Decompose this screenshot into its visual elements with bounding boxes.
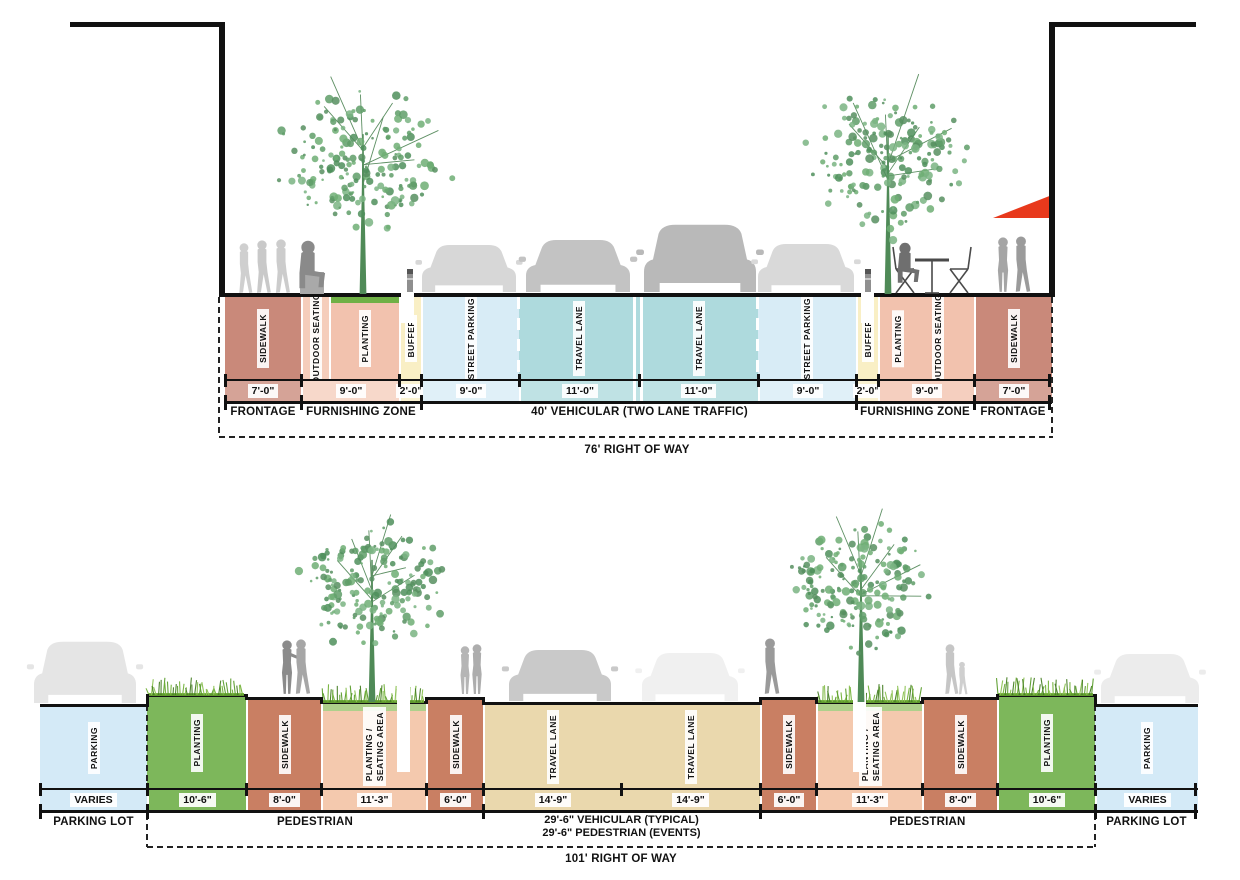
dimension-cell: 14'-9" [621, 789, 760, 811]
group-label-line2: 29'-6" PEDESTRIAN (EVENTS) [483, 827, 760, 839]
zone-buffer: BUFFER [856, 297, 878, 380]
group-tick [1194, 804, 1197, 819]
zone-label: OUTDOOR SEATING [933, 293, 943, 383]
group-label-line1: 29'-6" VEHICULAR (TYPICAL) [483, 814, 760, 826]
dimension-cell: 6'-0" [426, 789, 483, 811]
dimension-tick [757, 374, 760, 387]
ground-step [815, 697, 818, 704]
awning [993, 195, 1052, 218]
dimension-tick [1194, 783, 1197, 796]
parking-boundary-dash [1094, 695, 1096, 789]
group-label: PEDESTRIAN [760, 816, 1095, 828]
dimension-tick [638, 374, 641, 387]
dimension-tick [1094, 783, 1097, 796]
dimension-tick [620, 783, 623, 796]
dimension-tick [759, 783, 762, 796]
dimension-cell: VARIES [1095, 789, 1198, 811]
dimension-value: 9'-0" [793, 384, 824, 398]
dimension-cell: 2'-0" [399, 380, 421, 402]
dimension-cell: 6'-0" [760, 789, 816, 811]
zone-parking: PARKING [40, 704, 147, 789]
row-bracket-left [218, 297, 220, 436]
zone-planting-seating: PLANTING /SEATING AREA [321, 701, 426, 789]
group-label: PEDESTRIAN [147, 816, 483, 828]
group-tick [1048, 395, 1051, 410]
dimension-cell: 7'-0" [225, 380, 301, 402]
group-label: FURNISHING ZONE [295, 406, 427, 418]
building-wall-right [1049, 22, 1055, 297]
zone-furnishing-right: PLANTING OUTDOOR SEATING [878, 297, 974, 380]
zone-sidewalk: SIDEWALK [974, 297, 1052, 380]
zone-label: BUFFER [406, 320, 416, 357]
dimension-cell: 9'-0" [878, 380, 974, 402]
building-wall-left [219, 22, 225, 297]
car-icon [519, 240, 638, 292]
dimension-cell: 11'-0" [639, 380, 758, 402]
person-silhouette [765, 638, 780, 693]
dimension-cell: 11'-0" [519, 380, 639, 402]
dimension-line [40, 788, 1198, 790]
zone-label: TRAVEL LANE [686, 715, 696, 779]
car-icon [502, 650, 618, 701]
ground-step [996, 694, 999, 700]
zone-planting-seating: PLANTING /SEATING AREA [816, 701, 922, 789]
group-line [40, 810, 1198, 813]
group-label: PARKING LOT [1095, 816, 1198, 828]
group-label: 40' VEHICULAR (TWO LANE TRAFFIC) [421, 406, 858, 418]
dimension-tick [224, 374, 227, 387]
zone-label: STREET PARKING [802, 298, 812, 379]
ground-line-top [219, 293, 1055, 297]
zone-travel-lane: TRAVEL LANE [639, 297, 758, 380]
zone-label: SIDEWALK [956, 720, 966, 769]
dimension-cell: 2'-0" [856, 380, 878, 402]
zone-label: SIDEWALK [1009, 314, 1019, 363]
dimension-tick [245, 783, 248, 796]
zone-label: SIDEWALK [258, 314, 268, 363]
street-section-diagrams: SIDEWALK OUTDOOR SEATING PLANTING BUFFER… [0, 0, 1240, 880]
dimension-cell: 7'-0" [974, 380, 1052, 402]
zone-label: TRAVEL LANE [694, 306, 704, 370]
person-silhouette [461, 646, 470, 694]
group-tick [39, 804, 42, 819]
dimension-value: 9'-0" [456, 384, 487, 398]
zone-label: PLANTING [192, 719, 202, 766]
zone-travel-lane: TRAVEL LANE [483, 702, 621, 789]
zone-label: SIDEWALK [451, 720, 461, 769]
dimension-cell: 14'-9" [483, 789, 621, 811]
dimension-value: 11'-3" [357, 793, 393, 807]
zone-label: PLANTING [893, 315, 903, 362]
dimension-cell: 11'-3" [321, 789, 426, 811]
dimension-value: 6'-0" [774, 793, 805, 807]
dimension-value: 11'-3" [852, 793, 888, 807]
dimension-cell: 9'-0" [421, 380, 519, 402]
group-label: FRONTAGE [974, 406, 1052, 418]
zone-sidewalk: SIDEWALK [426, 697, 483, 789]
group-tick [1094, 804, 1097, 819]
car-icon [635, 653, 744, 701]
dimension-value: VARIES [1124, 793, 1170, 807]
zone-label: PARKING [89, 727, 99, 769]
tree-icon [790, 509, 932, 702]
parking-lane-dash [517, 297, 520, 380]
zone-buffer: BUFFER [399, 297, 421, 380]
dimension-cell: 10'-6" [997, 789, 1095, 811]
group-tick [420, 395, 423, 410]
building-roofline-right [1049, 22, 1196, 27]
tree-icon [803, 74, 970, 294]
zone-label: PLANTING [360, 315, 370, 362]
dimension-tick [398, 374, 401, 387]
dimension-tick [996, 783, 999, 796]
tree-icon [277, 77, 455, 294]
ground-step [759, 697, 762, 705]
dimension-tick [39, 783, 42, 796]
row-bracket-line [219, 436, 1053, 438]
bollard-icon [407, 269, 413, 292]
zone-planting: PLANTING [147, 694, 246, 789]
dimension-tick [425, 783, 428, 796]
zone-label: STREET PARKING [466, 298, 476, 379]
ground-step [245, 694, 248, 700]
zone-label: PLANTING / [860, 712, 870, 781]
dimension-value: 9'-0" [336, 384, 367, 398]
dimension-tick [146, 783, 149, 796]
person-silhouette [296, 639, 310, 693]
dimension-cell: 11'-3" [816, 789, 922, 811]
dimension-value: VARIES [70, 793, 116, 807]
zone-planting: PLANTING [997, 694, 1095, 789]
zone-sidewalk: SIDEWALK [246, 697, 321, 789]
dimension-value: 11'-0" [562, 384, 598, 398]
zone-sidewalk: SIDEWALK [922, 697, 997, 789]
car-icon [1094, 654, 1206, 703]
dimension-cell: 10'-6" [147, 789, 246, 811]
parking-lane-dash [756, 297, 759, 380]
group-tick [146, 804, 149, 819]
ground-step [146, 694, 149, 707]
dimension-value: 7'-0" [999, 384, 1030, 398]
dimension-value: 10'-6" [179, 793, 216, 807]
parking-boundary-dash [146, 695, 148, 789]
group-line [225, 401, 1052, 404]
bollard-icon [865, 269, 871, 292]
ground-step [921, 697, 924, 704]
zone-sidewalk: SIDEWALK [760, 697, 816, 789]
zone-sidewalk: SIDEWALK [225, 297, 301, 380]
dimension-cell: 8'-0" [922, 789, 997, 811]
car-icon [415, 245, 522, 292]
dimension-value: 14'-9" [672, 793, 709, 807]
zone-street-parking: STREET PARKING [758, 297, 856, 380]
zone-label: PARKING [1142, 727, 1152, 769]
group-tick [855, 395, 858, 410]
dimension-cell: VARIES [40, 789, 147, 811]
zone-outdoor-seating: OUTDOOR SEATING [301, 297, 329, 380]
zone-label: TRAVEL LANE [574, 306, 584, 370]
group-label: FRONTAGE [225, 406, 301, 418]
dimension-value: 8'-0" [269, 793, 300, 807]
zone-label: SEATING AREA [871, 712, 881, 781]
dimension-tick [300, 374, 303, 387]
zone-street-parking: STREET PARKING [421, 297, 519, 380]
person-silhouette [945, 644, 958, 694]
ground-step [425, 697, 428, 704]
dimension-value: 10'-6" [1029, 793, 1066, 807]
dimension-tick [420, 374, 423, 387]
right-of-way-label: 76' RIGHT OF WAY [437, 444, 837, 456]
dimension-tick [877, 374, 880, 387]
group-tick [482, 804, 485, 819]
zone-label: PLANTING / [364, 712, 374, 781]
zone-label: OUTDOOR SEATING [311, 293, 321, 383]
zone-travel-lane: TRAVEL LANE [519, 297, 639, 380]
dimension-value: 7'-0" [248, 384, 279, 398]
tree-icon [295, 514, 445, 702]
dimension-tick [855, 374, 858, 387]
dimension-tick [482, 783, 485, 796]
person-silhouette [276, 239, 290, 292]
zone-label: TRAVEL LANE [548, 715, 558, 779]
ground-step [320, 697, 323, 704]
person-silhouette [959, 662, 968, 694]
dimension-value: 14'-9" [535, 793, 572, 807]
zone-label: SIDEWALK [784, 720, 794, 769]
dimension-tick [518, 374, 521, 387]
dimension-tick [973, 374, 976, 387]
group-tick [973, 395, 976, 410]
ground-step [1094, 694, 1097, 707]
row-bracket-line [147, 846, 1095, 848]
car-icon [751, 244, 860, 292]
dimension-value: 9'-0" [912, 384, 943, 398]
dimension-tick [815, 783, 818, 796]
row-bracket-right [1051, 297, 1053, 436]
dimension-cell: 9'-0" [758, 380, 856, 402]
zone-travel-lane: TRAVEL LANE [621, 702, 760, 789]
person-silhouette [257, 240, 271, 293]
seated-person-silhouette [898, 243, 920, 283]
car-icon [636, 225, 764, 292]
person-silhouette [1016, 236, 1031, 291]
zone-label: SIDEWALK [280, 720, 290, 769]
group-tick [300, 395, 303, 410]
seated-person-silhouette [299, 241, 325, 289]
group-tick [759, 804, 762, 819]
zone-label: PLANTING [1042, 719, 1052, 766]
zone-label: BUFFER [863, 320, 873, 357]
right-of-way-label: 101' RIGHT OF WAY [421, 853, 821, 865]
ground-step [482, 697, 485, 705]
dimension-value: 8'-0" [945, 793, 976, 807]
group-label: PARKING LOT [40, 816, 147, 828]
cafe-table-icon [893, 247, 971, 293]
building-roofline-left [70, 22, 225, 27]
dimension-tick [921, 783, 924, 796]
person-silhouette [998, 237, 1008, 291]
dimension-value: 6'-0" [440, 793, 471, 807]
dimension-cell: 8'-0" [246, 789, 321, 811]
dimension-value: 11'-0" [681, 384, 717, 398]
zone-planting: PLANTING [329, 297, 399, 380]
dimension-cell: 9'-0" [301, 380, 399, 402]
dimension-tick [1048, 374, 1051, 387]
person-silhouette [472, 644, 481, 694]
dimension-tick [320, 783, 323, 796]
group-tick [224, 395, 227, 410]
person-silhouette [239, 243, 252, 293]
center-line [633, 297, 636, 401]
group-label: FURNISHING ZONE [855, 406, 975, 418]
zone-parking: PARKING [1095, 704, 1198, 789]
person-silhouette [282, 640, 300, 693]
car-icon [27, 642, 143, 703]
zone-label: SEATING AREA [375, 712, 385, 781]
